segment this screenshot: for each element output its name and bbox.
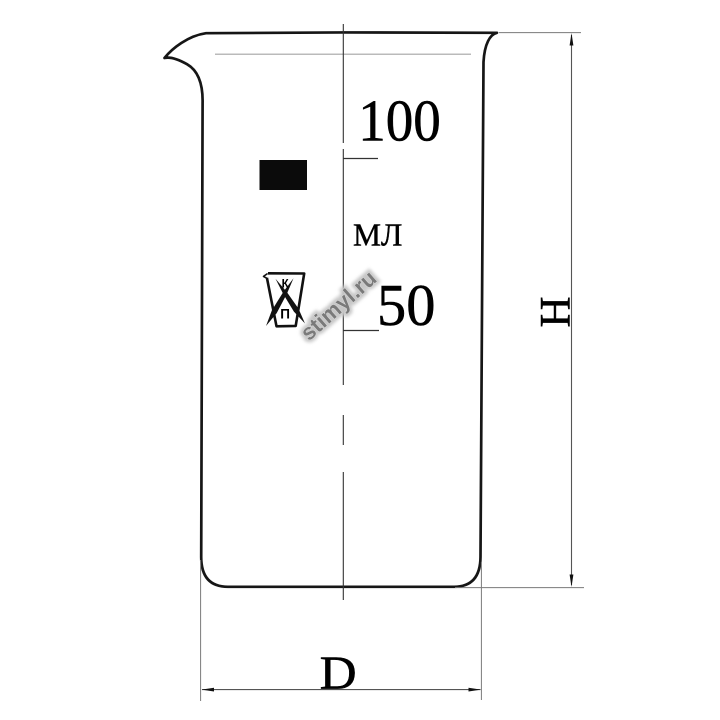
svg-text:К: К xyxy=(282,279,290,291)
svg-text:П: П xyxy=(280,307,290,322)
svg-text:D: D xyxy=(320,647,357,700)
svg-text:50: 50 xyxy=(377,273,435,338)
svg-text:stimyl.ru: stimyl.ru xyxy=(296,265,382,345)
svg-text:МЛ: МЛ xyxy=(353,217,402,252)
svg-text:H: H xyxy=(532,296,579,327)
svg-text:100: 100 xyxy=(358,89,441,154)
